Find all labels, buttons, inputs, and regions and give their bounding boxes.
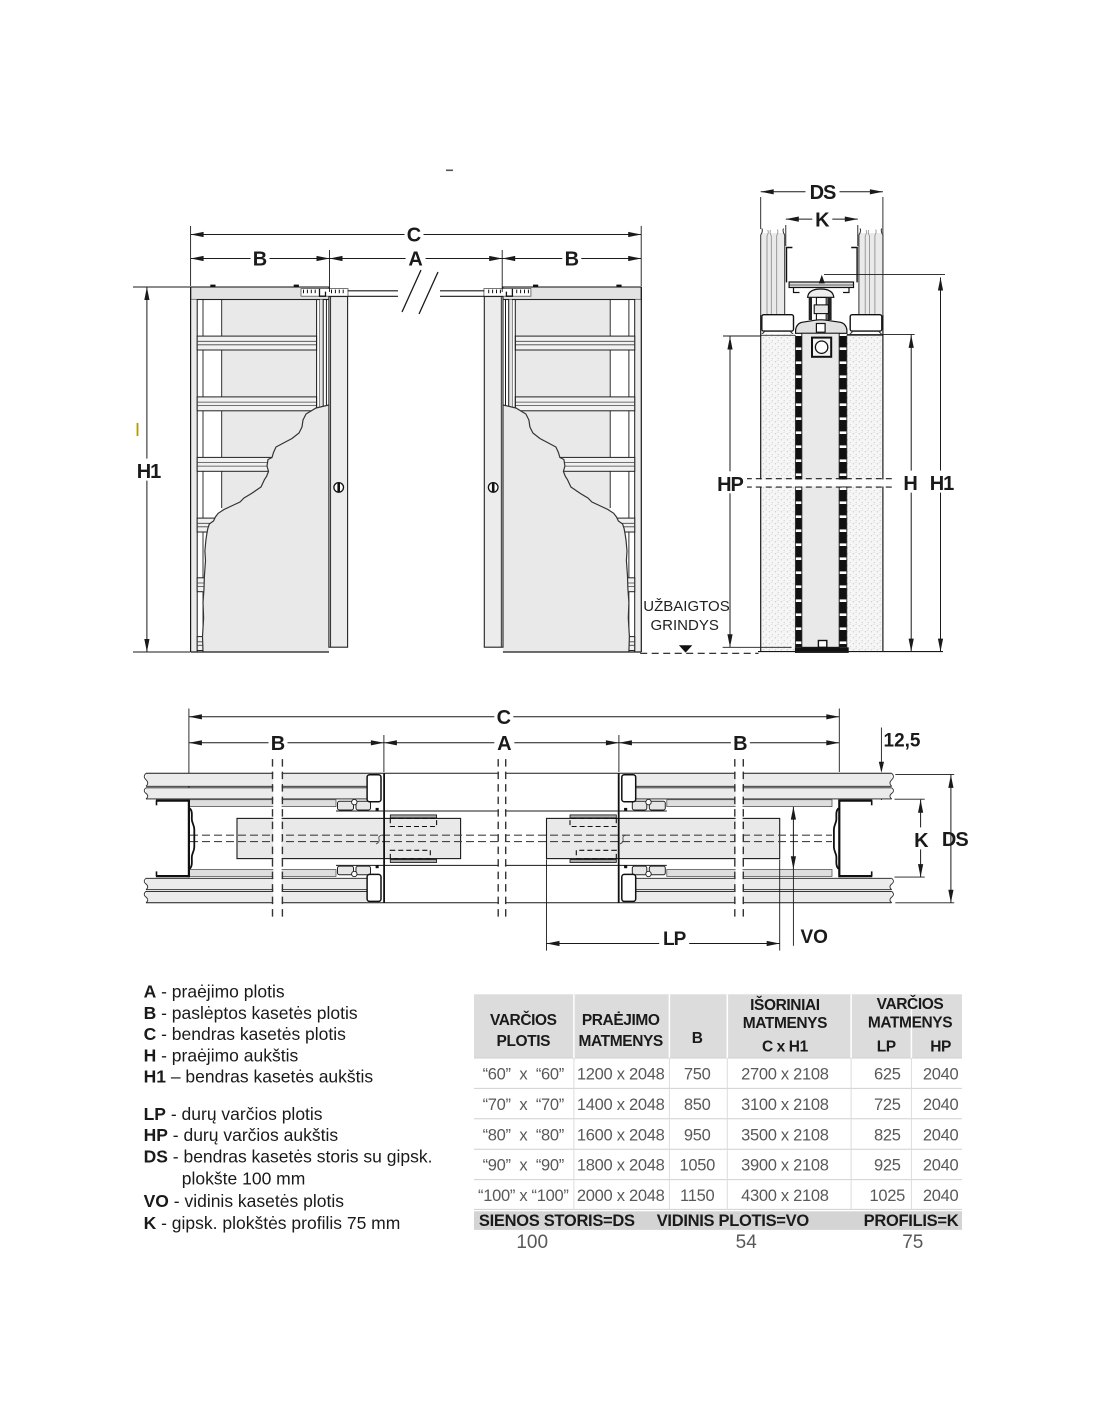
svg-text:2040: 2040 xyxy=(923,1096,959,1114)
svg-text:825: 825 xyxy=(874,1126,901,1144)
svg-text:IŠORINIAI: IŠORINIAI xyxy=(750,996,820,1014)
svg-text:950: 950 xyxy=(684,1126,711,1144)
svg-text:PROFILIS=K: PROFILIS=K xyxy=(864,1212,959,1230)
svg-text:850: 850 xyxy=(684,1096,711,1114)
svg-text:plokšte 100 mm: plokšte 100 mm xyxy=(182,1168,306,1188)
svg-text:725: 725 xyxy=(874,1096,901,1114)
svg-text:DS: DS xyxy=(810,182,836,204)
svg-text:2700 x 2108: 2700 x 2108 xyxy=(741,1066,829,1084)
svg-text:H - praėjimo aukštis: H - praėjimo aukštis xyxy=(144,1046,299,1066)
svg-text:VO: VO xyxy=(801,927,828,948)
svg-text:MATMENYS: MATMENYS xyxy=(868,1015,952,1032)
svg-text:B: B xyxy=(271,733,285,755)
svg-text:H1 – bendras kasetės aukštis: H1 – bendras kasetės aukštis xyxy=(144,1067,374,1087)
svg-text:75: 75 xyxy=(902,1232,923,1253)
svg-text:B: B xyxy=(692,1030,703,1047)
svg-text:“100” x “100”: “100” x “100” xyxy=(478,1187,569,1205)
svg-text:4300 x 2108: 4300 x 2108 xyxy=(741,1187,829,1205)
svg-text:1025: 1025 xyxy=(870,1187,906,1205)
svg-text:C - bendras kasetės plotis: C - bendras kasetės plotis xyxy=(144,1024,347,1044)
svg-text:100: 100 xyxy=(516,1232,548,1253)
svg-text:K: K xyxy=(914,830,929,852)
svg-text:C x H1: C x H1 xyxy=(762,1039,809,1056)
svg-text:VO - vidinis kasetės plotis: VO - vidinis kasetės plotis xyxy=(144,1191,345,1211)
svg-text:2040: 2040 xyxy=(923,1187,959,1205)
svg-text:B - paslėptos kasetės plotis: B - paslėptos kasetės plotis xyxy=(144,1003,358,1023)
svg-text:1800 x 2048: 1800 x 2048 xyxy=(577,1157,665,1175)
svg-text:VARČIOS: VARČIOS xyxy=(877,995,944,1013)
svg-text:PRAĖJIMO: PRAĖJIMO xyxy=(582,1012,660,1029)
svg-text:1600 x 2048: 1600 x 2048 xyxy=(577,1126,665,1144)
svg-text:VIDINIS PLOTIS=VO: VIDINIS PLOTIS=VO xyxy=(657,1212,810,1230)
svg-text:MATMENYS: MATMENYS xyxy=(579,1033,663,1050)
svg-text:GRINDYS: GRINDYS xyxy=(651,617,719,634)
svg-text:HP - durų varčios aukštis: HP - durų varčios aukštis xyxy=(144,1125,339,1145)
svg-text:“90” x “90”: “90” x “90” xyxy=(483,1157,564,1175)
svg-text:A - praėjimo plotis: A - praėjimo plotis xyxy=(144,982,285,1002)
svg-text:“80” x “80”: “80” x “80” xyxy=(483,1126,564,1144)
svg-text:DS: DS xyxy=(942,829,968,851)
svg-text:B: B xyxy=(733,733,747,755)
svg-text:H: H xyxy=(903,473,917,495)
svg-text:2040: 2040 xyxy=(923,1066,959,1084)
svg-text:B: B xyxy=(253,249,267,271)
svg-text:K: K xyxy=(815,209,830,231)
svg-text:HP: HP xyxy=(930,1039,951,1056)
svg-text:2040: 2040 xyxy=(923,1157,959,1175)
svg-text:3100 x 2108: 3100 x 2108 xyxy=(741,1096,829,1114)
svg-text:LP: LP xyxy=(877,1039,896,1056)
svg-text:A: A xyxy=(408,249,422,271)
svg-text:A: A xyxy=(497,733,511,755)
svg-text:12,5: 12,5 xyxy=(884,731,921,752)
svg-text:C: C xyxy=(497,707,511,729)
svg-text:1400 x 2048: 1400 x 2048 xyxy=(577,1096,665,1114)
svg-text:“60” x “60”: “60” x “60” xyxy=(483,1066,564,1084)
svg-text:HP: HP xyxy=(717,474,743,496)
svg-text:LP - durų varčios plotis: LP - durų varčios plotis xyxy=(144,1104,323,1124)
svg-text:PLOTIS: PLOTIS xyxy=(497,1033,551,1050)
svg-text:SIENOS STORIS=DS: SIENOS STORIS=DS xyxy=(479,1212,635,1230)
svg-text:H1: H1 xyxy=(137,461,161,483)
svg-text:625: 625 xyxy=(874,1066,901,1084)
svg-text:B: B xyxy=(565,249,579,271)
svg-text:LP: LP xyxy=(663,929,687,950)
svg-text:1050: 1050 xyxy=(679,1157,715,1175)
svg-text:VARČIOS: VARČIOS xyxy=(490,1011,557,1029)
svg-text:1200 x 2048: 1200 x 2048 xyxy=(577,1066,665,1084)
svg-text:2000 x 2048: 2000 x 2048 xyxy=(577,1187,665,1205)
svg-text:MATMENYS: MATMENYS xyxy=(743,1015,827,1032)
svg-text:925: 925 xyxy=(874,1157,901,1175)
svg-text:UŽBAIGTOS: UŽBAIGTOS xyxy=(643,598,729,615)
svg-text:54: 54 xyxy=(736,1232,758,1253)
svg-text:K - gipsk. plokštės profilis 7: K - gipsk. plokštės profilis 75 mm xyxy=(144,1213,401,1233)
svg-text:DS - bendras kasetės storis su: DS - bendras kasetės storis su gipsk. xyxy=(144,1147,433,1167)
svg-text:750: 750 xyxy=(684,1066,711,1084)
svg-text:3900 x 2108: 3900 x 2108 xyxy=(741,1157,829,1175)
svg-text:C: C xyxy=(407,225,421,247)
svg-text:3500 x 2108: 3500 x 2108 xyxy=(741,1126,829,1144)
svg-text:H1: H1 xyxy=(930,473,954,495)
svg-text:1150: 1150 xyxy=(680,1187,714,1205)
svg-text:2040: 2040 xyxy=(923,1126,959,1144)
svg-text:“70” x “70”: “70” x “70” xyxy=(483,1096,564,1114)
